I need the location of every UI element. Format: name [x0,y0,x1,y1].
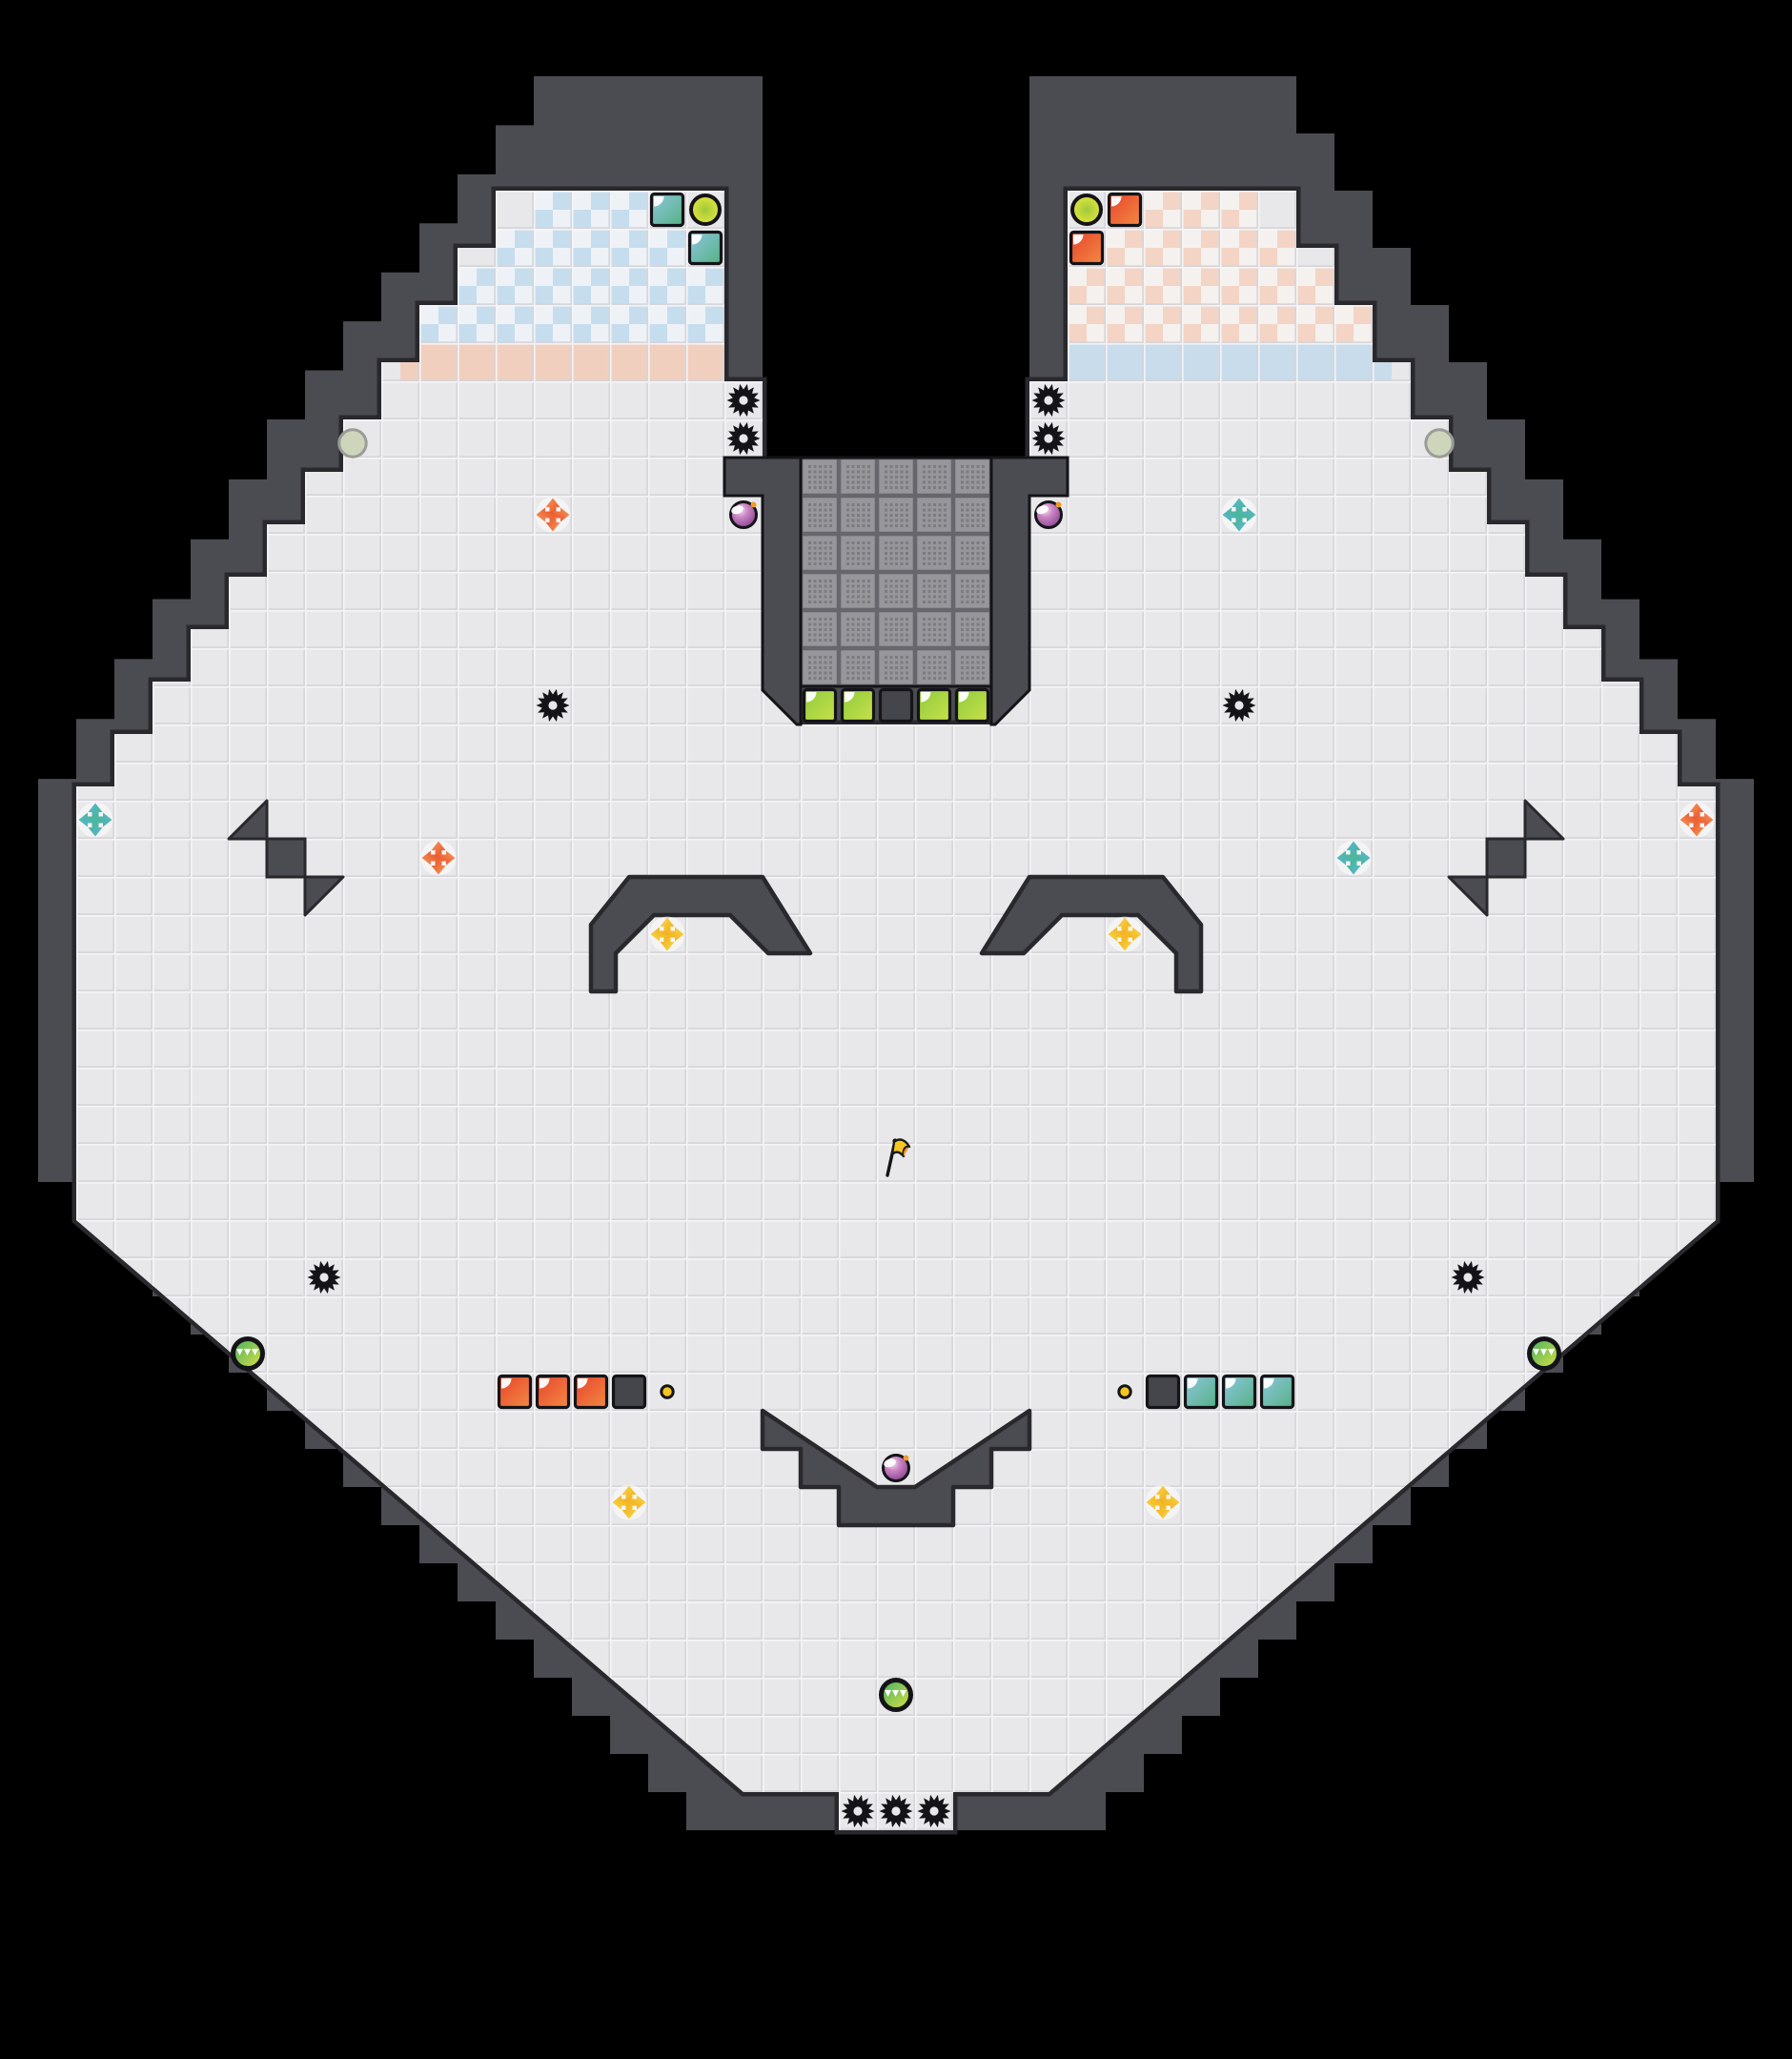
floor-grid [0,0,1792,2059]
block-green[interactable] [957,690,988,722]
orb-yellowgreen-pickup[interactable] [1072,195,1101,224]
brow-wall-right [1487,839,1525,877]
block-teal[interactable] [652,194,683,226]
orb-fanged-pickup[interactable] [234,1339,263,1369]
brow-wall-left [267,839,305,877]
orb-sage-pickup[interactable] [1426,430,1453,457]
block-teal[interactable] [690,233,722,264]
block-green[interactable] [804,690,836,722]
block-green[interactable] [919,690,950,722]
block-green[interactable] [843,690,874,722]
move-arrows-yellow-icon[interactable] [612,1485,647,1520]
bomb-icon[interactable] [730,502,756,528]
move-arrows-orange-icon[interactable] [1680,803,1715,838]
orb-sage-pickup[interactable] [339,430,366,457]
small-dot-pickup[interactable] [662,1386,673,1397]
block-red[interactable] [499,1376,531,1408]
move-arrows-yellow-icon[interactable] [1108,917,1143,952]
move-arrows-teal-icon[interactable] [1222,498,1257,533]
move-arrows-orange-icon[interactable] [536,498,571,533]
small-dot-pickup[interactable] [1119,1386,1130,1397]
block-teal[interactable] [1262,1376,1293,1408]
screenshot-root [0,0,1792,2059]
bomb-icon[interactable] [883,1456,908,1481]
block-red[interactable] [538,1376,569,1408]
block-teal[interactable] [1186,1376,1217,1408]
game-map-viewport[interactable] [0,0,1792,2059]
block-red[interactable] [1071,233,1103,264]
move-arrows-teal-icon[interactable] [1336,841,1372,876]
block-red[interactable] [1110,194,1141,226]
bomb-icon[interactable] [1035,502,1061,528]
move-arrows-teal-icon[interactable] [78,803,113,838]
orb-fanged-pickup[interactable] [882,1681,911,1710]
move-arrows-orange-icon[interactable] [421,841,457,876]
orb-yellowgreen-pickup[interactable] [691,195,720,224]
block-dark[interactable] [1148,1376,1179,1408]
move-arrows-yellow-icon[interactable] [650,917,685,952]
orb-fanged-pickup[interactable] [1530,1339,1559,1369]
brick-shaft [801,458,991,686]
floor-decor [0,0,1792,2059]
block-red[interactable] [576,1376,607,1408]
block-dark[interactable] [881,690,912,722]
block-teal[interactable] [1224,1376,1255,1408]
move-arrows-yellow-icon[interactable] [1146,1485,1181,1520]
block-dark[interactable] [614,1376,645,1408]
